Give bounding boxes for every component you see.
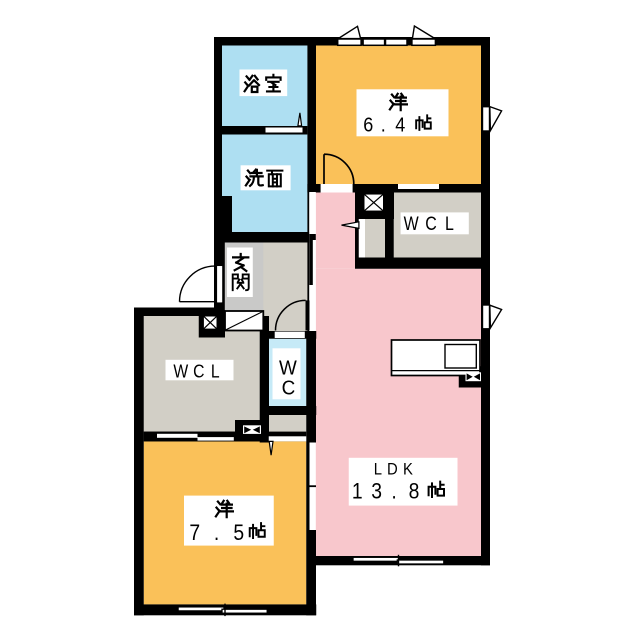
svg-text:3: 3 — [371, 479, 382, 503]
svg-text:L: L — [445, 212, 454, 234]
svg-text:5: 5 — [233, 521, 244, 545]
svg-text:C: C — [425, 212, 437, 234]
svg-text:L: L — [211, 360, 220, 382]
svg-text:C: C — [282, 377, 296, 400]
svg-text:K: K — [403, 461, 413, 479]
svg-text:W: W — [173, 360, 189, 382]
svg-text:.: . — [214, 521, 219, 545]
svg-text:W: W — [404, 212, 419, 234]
svg-text:.: . — [381, 114, 386, 136]
svg-text:8: 8 — [409, 479, 420, 503]
svg-text:C: C — [193, 360, 204, 382]
svg-text:7: 7 — [189, 521, 200, 545]
svg-text:6: 6 — [363, 114, 373, 136]
svg-text:1: 1 — [352, 479, 363, 503]
svg-text:D: D — [387, 461, 398, 479]
svg-text:L: L — [374, 461, 383, 479]
svg-text:4: 4 — [395, 114, 405, 136]
svg-text:.: . — [391, 479, 396, 503]
